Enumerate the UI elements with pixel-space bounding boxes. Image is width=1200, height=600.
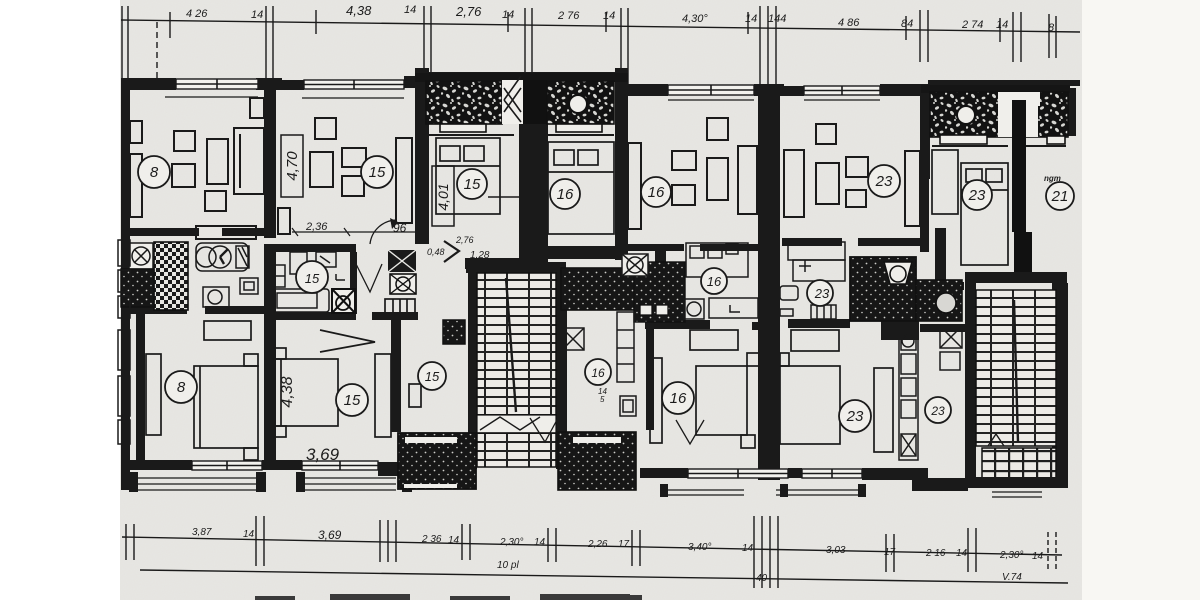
svg-text:17: 17: [884, 547, 896, 558]
svg-text:23: 23: [875, 173, 893, 190]
svg-text:14: 14: [742, 543, 754, 554]
svg-text:8: 8: [150, 164, 159, 181]
svg-text:15: 15: [464, 176, 481, 193]
svg-text:4 26: 4 26: [186, 8, 208, 20]
svg-text:2,76: 2,76: [455, 4, 482, 19]
svg-text:16: 16: [591, 366, 605, 380]
svg-text:16: 16: [648, 184, 665, 201]
svg-text:2,36: 2,36: [305, 221, 328, 233]
svg-text:2 16: 2 16: [925, 548, 946, 559]
svg-text:21: 21: [1051, 188, 1069, 205]
svg-text:23: 23: [814, 286, 830, 301]
svg-text:14: 14: [603, 10, 615, 22]
svg-text:14: 14: [243, 529, 255, 540]
svg-text:5: 5: [600, 395, 605, 404]
svg-text:23: 23: [846, 408, 864, 425]
svg-text:17: 17: [618, 539, 630, 550]
svg-text:3,40°: 3,40°: [688, 542, 711, 553]
svg-text:V.74: V.74: [1002, 572, 1022, 583]
svg-text:14: 14: [1032, 551, 1044, 562]
svg-text:2 76: 2 76: [557, 10, 580, 22]
svg-text:96: 96: [393, 221, 407, 235]
svg-text:15: 15: [305, 271, 320, 286]
svg-text:23: 23: [968, 187, 986, 204]
svg-text:16: 16: [670, 390, 687, 407]
svg-text:2 36: 2 36: [421, 534, 442, 545]
svg-text:3,03: 3,03: [826, 545, 846, 556]
svg-text:144: 144: [768, 13, 786, 25]
svg-text:4,30°: 4,30°: [682, 13, 708, 25]
svg-text:14: 14: [251, 9, 263, 21]
svg-text:15: 15: [344, 392, 361, 409]
svg-text:2,30°: 2,30°: [999, 550, 1023, 561]
svg-text:14: 14: [502, 9, 514, 21]
svg-text:16: 16: [557, 186, 574, 203]
svg-text:4,38: 4,38: [279, 376, 296, 407]
svg-text:3,69: 3,69: [306, 445, 340, 464]
svg-text:14: 14: [404, 4, 416, 16]
svg-text:4,70: 4,70: [284, 151, 301, 181]
svg-text:40: 40: [756, 573, 768, 584]
svg-text:1,28: 1,28: [470, 250, 490, 261]
svg-text:14: 14: [745, 13, 757, 25]
svg-text:8: 8: [1048, 22, 1055, 34]
svg-text:3,69: 3,69: [318, 528, 342, 542]
svg-text:84: 84: [901, 18, 913, 30]
svg-text:4,38: 4,38: [346, 3, 372, 18]
svg-text:14: 14: [534, 537, 546, 548]
svg-text:2 74: 2 74: [961, 19, 983, 31]
svg-text:14: 14: [956, 548, 968, 559]
svg-text:4 86: 4 86: [838, 17, 860, 29]
svg-text:15: 15: [369, 164, 386, 181]
svg-text:4,01: 4,01: [435, 183, 451, 210]
svg-text:15: 15: [425, 369, 440, 384]
svg-text:3,87: 3,87: [192, 527, 212, 538]
svg-text:2,76: 2,76: [455, 235, 474, 245]
svg-text:2,26: 2,26: [587, 539, 608, 550]
svg-text:14: 14: [448, 535, 460, 546]
svg-text:23: 23: [930, 404, 945, 418]
svg-text:10 pl: 10 pl: [497, 560, 519, 571]
svg-text:14: 14: [996, 19, 1008, 31]
svg-text:16: 16: [707, 274, 722, 289]
svg-text:0,48: 0,48: [427, 247, 445, 257]
svg-text:8: 8: [177, 379, 186, 396]
svg-text:2,30°: 2,30°: [499, 537, 523, 548]
svg-text:ngm: ngm: [1044, 174, 1061, 183]
